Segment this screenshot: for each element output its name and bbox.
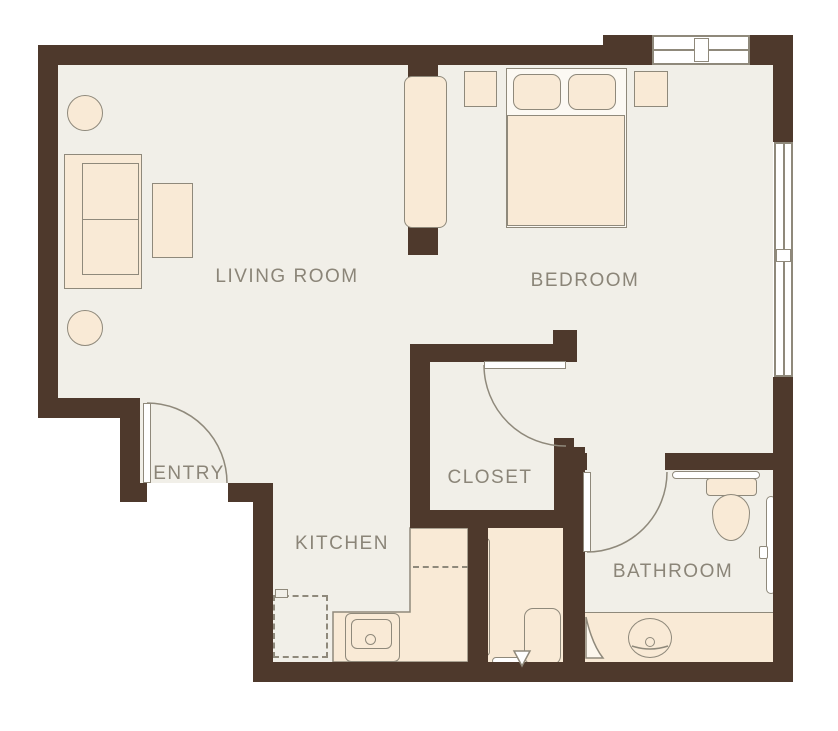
- pillow-right: [568, 74, 616, 110]
- bathroom-door-leaf: [583, 472, 591, 552]
- wall-closet-bottom: [410, 510, 585, 528]
- room-label-entry: ENTRY: [153, 463, 225, 485]
- coffee-table: [152, 183, 193, 258]
- side-table-top: [67, 95, 103, 131]
- wall-right-lower: [773, 377, 793, 682]
- nightstand-left: [464, 71, 497, 107]
- room-label-bedroom: BEDROOM: [531, 270, 640, 292]
- wall-bathroom-top: [665, 453, 773, 470]
- wall-closet-top-stub: [553, 330, 577, 346]
- wall-top-bedroom-step: [603, 35, 652, 65]
- refrigerator-handle: [275, 589, 288, 598]
- refrigerator-dashed: [273, 595, 328, 658]
- bathroom-sink-drain: [645, 637, 655, 647]
- nightstand-right: [634, 71, 668, 107]
- side-table-bottom: [67, 310, 103, 346]
- wall-bottom: [253, 662, 793, 682]
- pillow-left: [513, 74, 561, 110]
- sofa-cushions: [82, 163, 139, 275]
- wall-entry-bottom: [120, 483, 147, 502]
- room-label-bathroom: BATHROOM: [613, 561, 733, 583]
- wall-closet-top: [410, 344, 577, 362]
- wall-right-upper: [773, 35, 793, 142]
- sofa-cushion-divider: [83, 219, 138, 220]
- entry-door-leaf: [143, 403, 151, 483]
- bedroom-top-window-mullion: [694, 38, 709, 62]
- sofa: [64, 154, 142, 289]
- bedroom-right-window-mullion: [776, 249, 791, 262]
- wall-utility-left: [468, 528, 488, 662]
- washer-appliance: [524, 608, 561, 665]
- wall-utility-bathroom: [563, 447, 585, 665]
- wall-closet-left: [410, 344, 430, 528]
- bed-blanket: [507, 115, 625, 226]
- grab-bar-tab: [759, 546, 768, 559]
- kitchen-sink: [345, 613, 400, 662]
- upper-cabinet-dash-line: [413, 566, 468, 568]
- wall-entry-step: [228, 483, 273, 502]
- floor-plan: LIVING ROOM BEDROOM ENTRY CLOSET KITCHEN…: [0, 0, 838, 731]
- room-label-living-room: LIVING ROOM: [215, 266, 358, 288]
- wall-top-main: [38, 45, 603, 65]
- closet-door-leaf: [484, 361, 566, 369]
- bed: [506, 68, 627, 228]
- kitchen-sink-drain: [365, 634, 376, 645]
- wall-left: [38, 45, 58, 418]
- wall-kitchen-left: [253, 502, 273, 682]
- room-label-kitchen: KITCHEN: [295, 533, 389, 555]
- bathroom-vanity-counter: [585, 612, 773, 662]
- wardrobe: [404, 76, 447, 228]
- room-label-closet: CLOSET: [447, 467, 532, 489]
